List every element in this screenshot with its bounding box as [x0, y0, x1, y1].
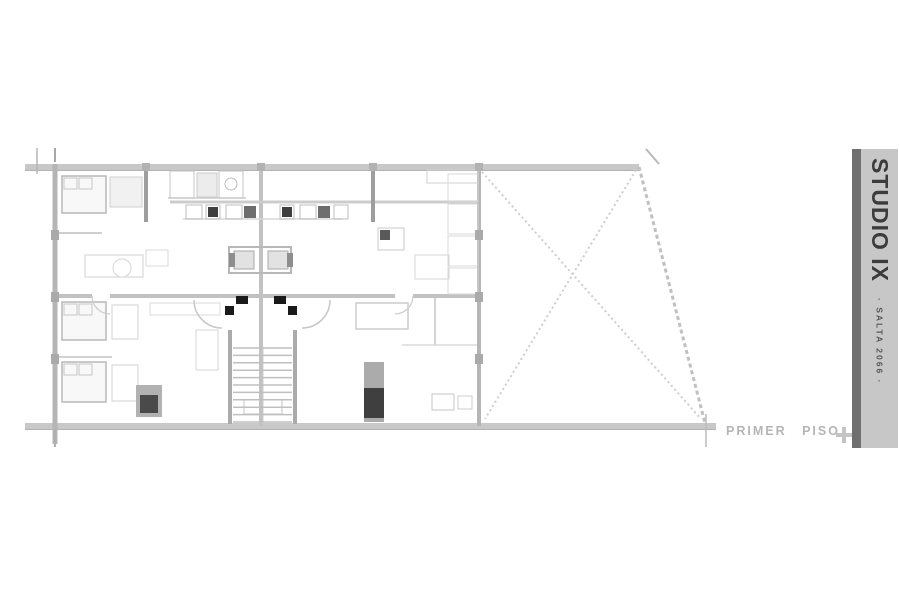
title-block-strip	[852, 149, 861, 448]
project-subtitle: · SALTA 2066 ·	[875, 298, 885, 384]
floor-label: PRIMER PISO	[726, 424, 840, 438]
project-title: STUDIO IX	[868, 158, 891, 282]
floor-plan	[0, 0, 900, 600]
title-block-panel: STUDIO IX · SALTA 2066 ·	[861, 149, 898, 448]
floor-plan-svg	[0, 0, 900, 600]
title-block-bar: STUDIO IX · SALTA 2066 ·	[852, 149, 898, 448]
